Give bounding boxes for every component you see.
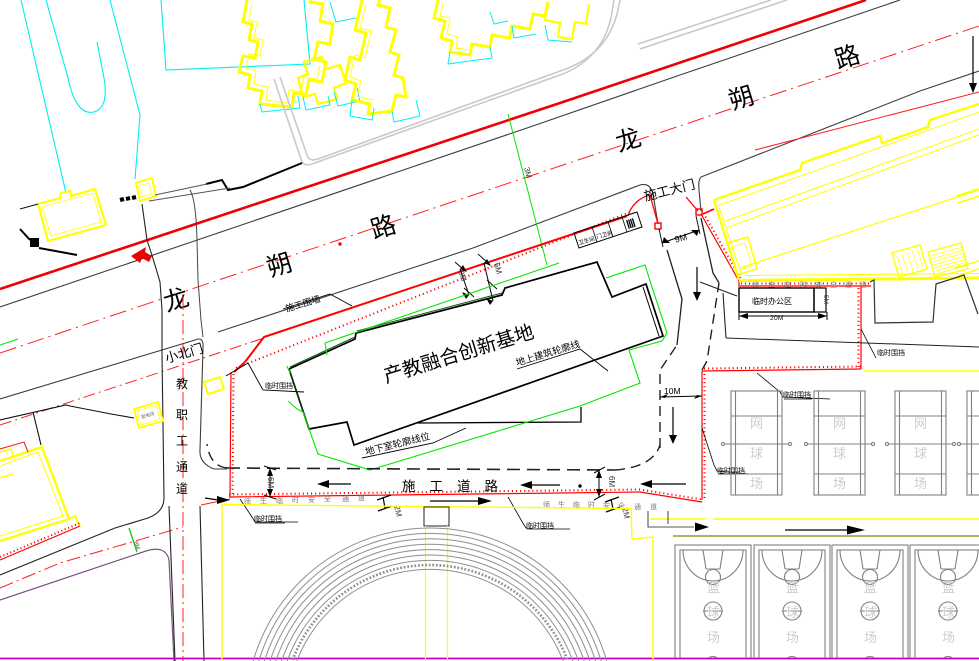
svg-text:全: 全 [830,280,837,289]
svg-text:道: 道 [650,502,657,511]
svg-text:施工道路: 施工道路 [402,479,512,494]
svg-text:通: 通 [634,502,641,511]
svg-text:职: 职 [176,408,188,422]
svg-text:场: 场 [786,630,799,645]
svg-text:20M: 20M [770,315,784,322]
svg-text:临时围挡: 临时围挡 [877,348,905,357]
svg-text:网: 网 [914,416,927,431]
svg-text:道: 道 [176,482,188,496]
svg-text:篮: 篮 [707,580,720,595]
svg-text:篮: 篮 [786,580,799,595]
svg-text:时: 时 [292,495,299,504]
svg-text:安: 安 [308,495,315,504]
svg-text:场: 场 [707,630,720,645]
svg-text:篮: 篮 [864,580,877,595]
svg-text:球: 球 [707,605,720,620]
svg-text:6M: 6M [266,477,275,488]
svg-text:5M: 5M [822,295,829,304]
svg-text:工: 工 [176,434,188,448]
svg-text:网: 网 [750,416,763,431]
svg-text:生: 生 [260,496,267,505]
svg-text:教: 教 [176,376,188,391]
svg-text:通: 通 [845,280,852,289]
svg-text:场: 场 [750,476,763,491]
svg-text:场: 场 [914,476,927,491]
svg-text:网: 网 [833,416,846,431]
svg-text:场: 场 [864,630,877,645]
svg-text:6M: 6M [607,476,616,487]
svg-text:道: 道 [358,493,365,502]
svg-text:篮: 篮 [942,580,955,595]
svg-text:球: 球 [942,605,955,620]
svg-text:临时围挡: 临时围挡 [265,381,293,390]
svg-text:球: 球 [833,446,846,461]
svg-text:球: 球 [786,605,799,620]
svg-text:道: 道 [860,280,867,289]
svg-text:10M: 10M [664,386,681,396]
svg-text:场: 场 [833,476,846,491]
svg-text:球: 球 [914,446,927,461]
svg-text:球: 球 [864,605,877,620]
svg-text:通: 通 [176,460,188,474]
svg-text:临时办公区: 临时办公区 [752,296,792,306]
svg-text:场: 场 [942,630,955,645]
svg-text:全: 全 [324,494,331,503]
svg-text:临: 临 [276,496,283,505]
svg-text:通: 通 [342,494,349,503]
svg-text:球: 球 [750,446,763,461]
